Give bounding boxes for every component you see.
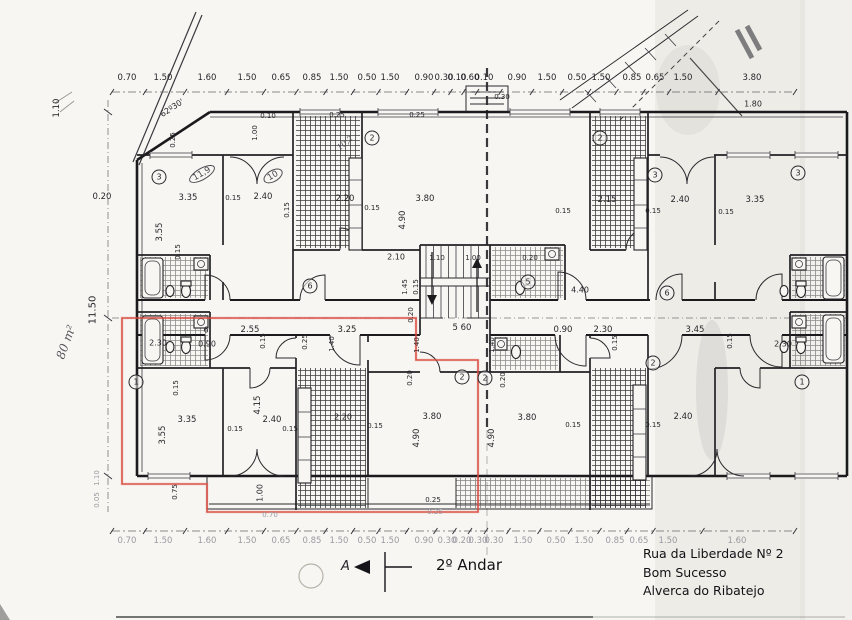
- section-marker-glyphs: [354, 552, 412, 592]
- address-line: Bom Sucesso: [643, 564, 784, 583]
- floor-plan-drawing: [0, 0, 852, 620]
- address-block: Rua da Liberdade Nº 2 Bom Sucesso Alverc…: [643, 545, 784, 601]
- address-line: Alverca do Ribatejo: [643, 582, 784, 601]
- staircase: [420, 245, 490, 318]
- scanned-floor-plan-sheet: 1.100.2011.5080 m²1.100.0562º30'0.251.00…: [0, 0, 852, 620]
- section-marker-label: A: [341, 559, 350, 574]
- address-line: Rua da Liberdade Nº 2: [643, 545, 784, 564]
- section-arrow-icon: [354, 560, 370, 574]
- floor-title: 2º Andar: [436, 556, 502, 574]
